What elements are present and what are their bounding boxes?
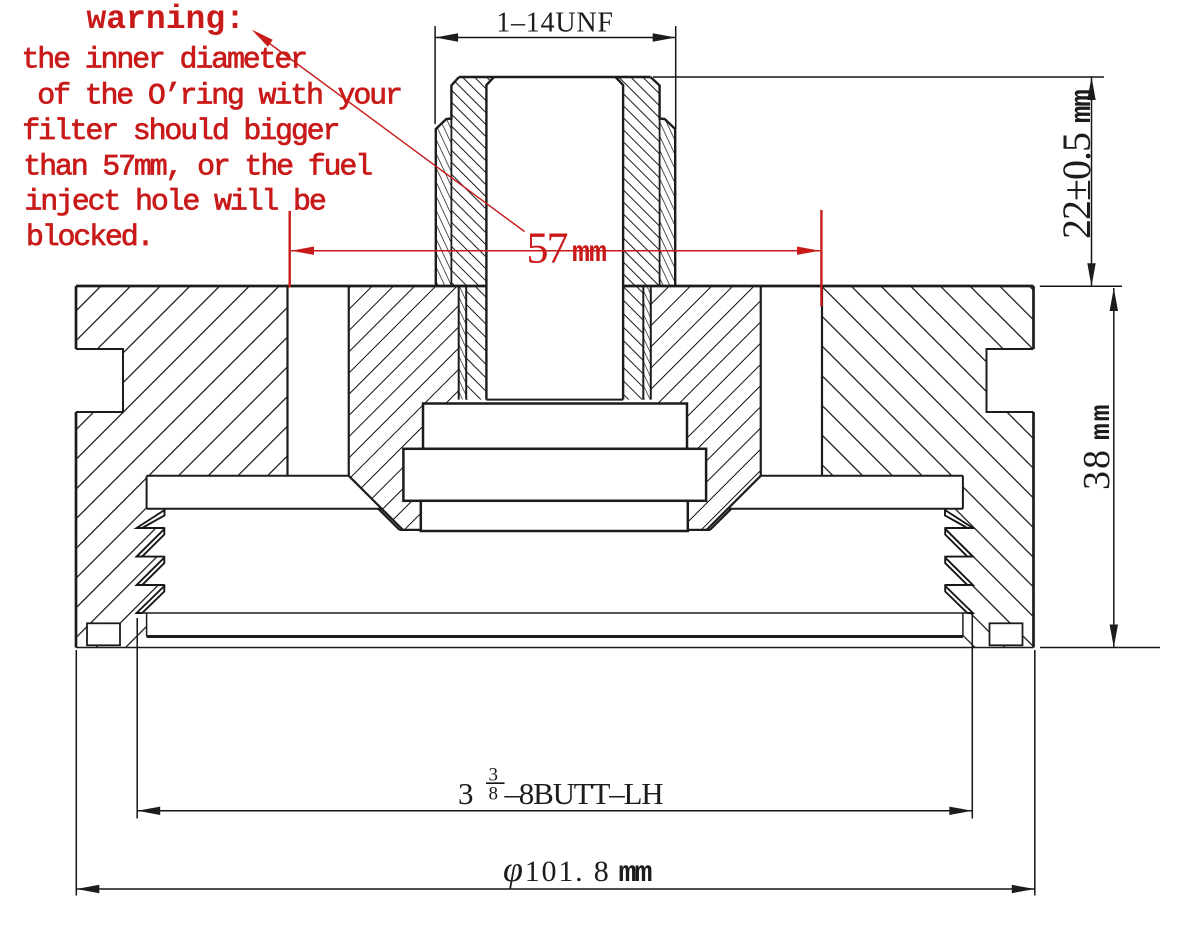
svg-text:–8BUTT–LH: –8BUTT–LH <box>504 776 664 811</box>
svg-text:the inner diameter: the inner diameter <box>22 44 307 78</box>
svg-text:blocked.: blocked. <box>26 221 152 255</box>
svg-text:inject hole will be: inject hole will be <box>24 185 325 219</box>
svg-text:of the O’ring with your: of the O’ring with your <box>37 79 401 113</box>
svg-text:1–14UNF: 1–14UNF <box>496 8 614 39</box>
svg-text:filter should bigger: filter should bigger <box>22 115 338 149</box>
svg-text:than 57mm, or the fuel: than 57mm, or the fuel <box>23 150 372 184</box>
svg-text:8: 8 <box>489 784 499 805</box>
svg-text:57: 57 <box>527 224 568 273</box>
svg-text:warning:: warning: <box>87 1 245 38</box>
svg-text:mm: mm <box>572 237 606 271</box>
svg-text:3: 3 <box>489 765 499 786</box>
svg-text:3: 3 <box>458 776 474 811</box>
